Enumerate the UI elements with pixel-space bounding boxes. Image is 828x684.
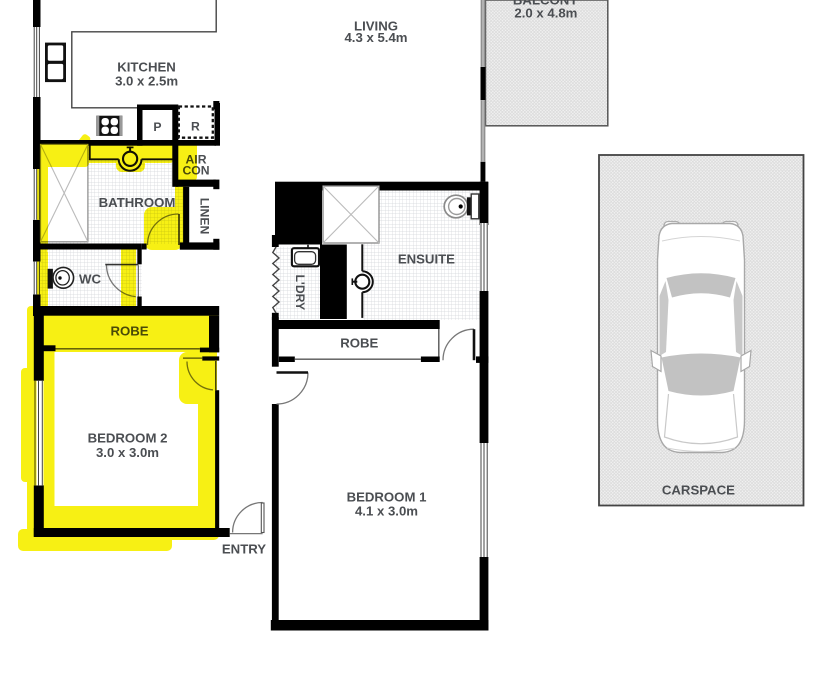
svg-text:L'DRY: L'DRY [293, 274, 307, 310]
svg-text:BEDROOM 2: BEDROOM 2 [88, 431, 168, 446]
svg-text:ENSUITE: ENSUITE [398, 251, 455, 266]
svg-text:4.3 x 5.4m: 4.3 x 5.4m [344, 30, 407, 45]
svg-text:CARSPACE: CARSPACE [662, 483, 735, 498]
svg-text:4.1 x 3.0m: 4.1 x 3.0m [355, 504, 418, 519]
svg-text:ENTRY: ENTRY [222, 542, 266, 557]
svg-text:WC: WC [79, 272, 101, 287]
svg-text:KITCHEN: KITCHEN [117, 60, 176, 75]
svg-text:ROBE: ROBE [340, 336, 378, 351]
svg-text:3.0 x 2.5m: 3.0 x 2.5m [115, 74, 178, 89]
svg-text:2.0 x 4.8m: 2.0 x 4.8m [514, 6, 577, 21]
svg-text:P: P [153, 120, 161, 134]
svg-text:3.0 x 3.0m: 3.0 x 3.0m [96, 445, 159, 460]
svg-text:LINEN: LINEN [197, 198, 211, 235]
svg-text:BEDROOM 1: BEDROOM 1 [347, 490, 427, 505]
svg-text:R: R [191, 120, 200, 134]
